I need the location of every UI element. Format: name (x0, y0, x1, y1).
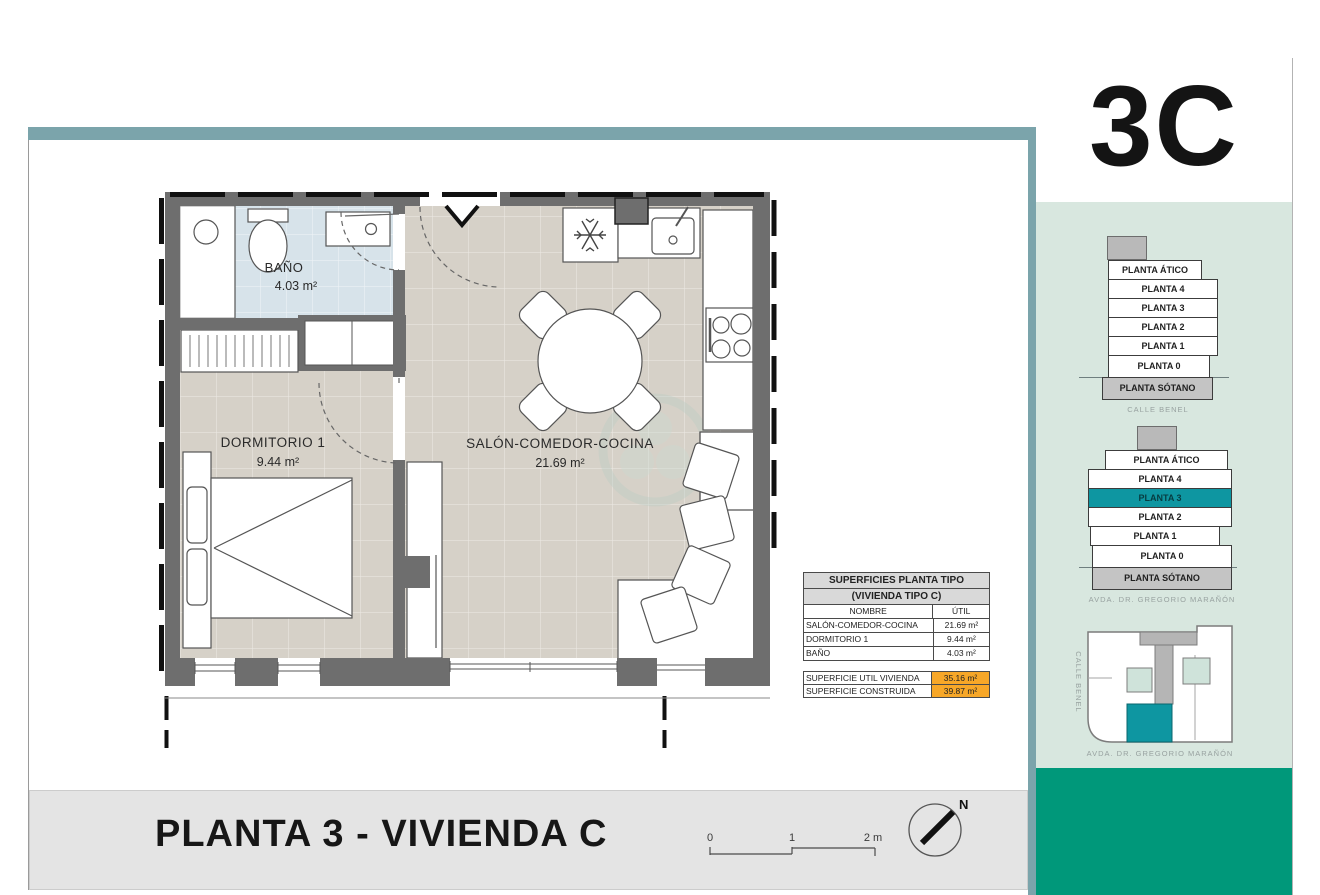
title-band: PLANTA 3 - VIVIENDA C 0 1 2 m N (29, 790, 1028, 890)
page-border-right (1292, 58, 1293, 895)
patio-block (1127, 668, 1152, 692)
table-row: DORMITORIO 1 9.44 m² (803, 633, 990, 647)
row-util: 9.44 m² (934, 633, 989, 646)
room-area-dormitorio: 9.44 m² (257, 455, 299, 469)
pillow (187, 487, 207, 543)
scale-tick-2m: 2 m (864, 832, 882, 844)
floor-row: PLANTA 0 (1092, 545, 1232, 568)
sheet-title: PLANTA 3 - VIVIENDA C (155, 813, 607, 856)
scale-bar (710, 847, 875, 856)
north-label: N (959, 797, 968, 812)
teal-band-top (28, 127, 1036, 140)
floor-row: PLANTA 4 (1108, 279, 1218, 299)
table-row: BAÑO 4.03 m² (803, 647, 990, 661)
unit-code-label: 3C (1036, 52, 1292, 200)
site-key-plan: CALLE BENEL AVDA. DR. GREGORIO MARAÑÓN (1060, 618, 1270, 768)
table-row: SALÓN-COMEDOR-COCINA 21.69 m² (803, 619, 990, 633)
total-util: 39.87 m² (932, 684, 990, 698)
corridor (1140, 632, 1197, 645)
total-util: 35.16 m² (932, 671, 990, 685)
north-arrow: N (909, 797, 968, 856)
floor-row: PLANTA 1 (1090, 526, 1220, 546)
unit-location-block (1127, 704, 1172, 742)
scale-and-north: 0 1 2 m N (670, 791, 1030, 891)
column (405, 556, 430, 588)
table-row-total: SUPERFICIE UTIL VIVIENDA 35.16 m² (803, 671, 990, 685)
floor-row: PLANTA 2 (1108, 317, 1218, 337)
floor-row: PLANTA 2 (1088, 507, 1232, 527)
bathroom-sink (326, 212, 390, 246)
room-area-salon: 21.69 m² (535, 456, 584, 470)
floor-row: PLANTA ÁTICO (1105, 450, 1228, 470)
floor-row-basement: PLANTA SÓTANO (1102, 377, 1213, 400)
row-util: 21.69 m² (934, 619, 989, 632)
areas-table: SUPERFICIES PLANTA TIPO (VIVIENDA TIPO C… (803, 572, 990, 698)
room-label-salon: SALÓN-COMEDOR-COCINA (466, 436, 654, 451)
room-label-bano: BAÑO (265, 260, 304, 275)
floor-plan: BAÑO 4.03 m² DORMITORIO 1 9.44 m² SALÓN-… (140, 160, 820, 780)
totals-table: SUPERFICIE UTIL VIVIENDA 35.16 m² SUPERF… (803, 671, 990, 698)
areas-table-title: SUPERFICIES PLANTA TIPO (803, 572, 990, 588)
room-label-dormitorio: DORMITORIO 1 (221, 435, 326, 450)
total-name: SUPERFICIE UTIL VIVIENDA (803, 671, 932, 685)
street-label: CALLE BENEL (1103, 405, 1213, 414)
shaft (615, 198, 648, 224)
pillow (187, 549, 207, 605)
floor-row: PLANTA 0 (1108, 355, 1210, 378)
floor-row-basement: PLANTA SÓTANO (1092, 567, 1232, 590)
dining-table (516, 288, 664, 434)
floor-row: PLANTA 3 (1108, 298, 1218, 318)
total-name: SUPERFICIE CONSTRUIDA (803, 684, 932, 698)
street-label-bottom: AVDA. DR. GREGORIO MARAÑÓN (1087, 749, 1234, 758)
page-border-left (28, 127, 29, 890)
roof-block (1137, 426, 1177, 450)
floor-row: PLANTA ÁTICO (1108, 260, 1202, 280)
row-name: BAÑO (804, 647, 934, 660)
floor-row-current: PLANTA 3 (1088, 488, 1232, 508)
areas-table-subtitle: (VIVIENDA TIPO C) (803, 588, 990, 605)
row-util: 4.03 m² (934, 647, 989, 660)
teal-band-vertical (1028, 127, 1036, 895)
street-label-left: CALLE BENEL (1074, 651, 1083, 712)
sidebar-footer-block (1036, 768, 1292, 895)
scale-tick-0: 0 (707, 832, 713, 844)
roof-block (1107, 236, 1147, 260)
patio-block (1183, 658, 1210, 684)
table-row-total: SUPERFICIE CONSTRUIDA 39.87 m² (803, 684, 990, 698)
room-area-bano: 4.03 m² (275, 279, 317, 293)
row-name: DORMITORIO 1 (804, 633, 934, 646)
street-label: AVDA. DR. GREGORIO MARAÑÓN (1077, 595, 1247, 604)
col-header-util: ÚTIL (933, 605, 989, 618)
scale-tick-1: 1 (789, 832, 795, 844)
row-name: SALÓN-COMEDOR-COCINA (804, 619, 934, 632)
areas-table-header: NOMBRE ÚTIL (803, 605, 990, 619)
floor-row: PLANTA 1 (1108, 336, 1218, 356)
bed (211, 478, 352, 618)
corridor-stem (1155, 645, 1173, 704)
floor-row: PLANTA 4 (1088, 469, 1232, 489)
col-header-nombre: NOMBRE (804, 605, 933, 618)
